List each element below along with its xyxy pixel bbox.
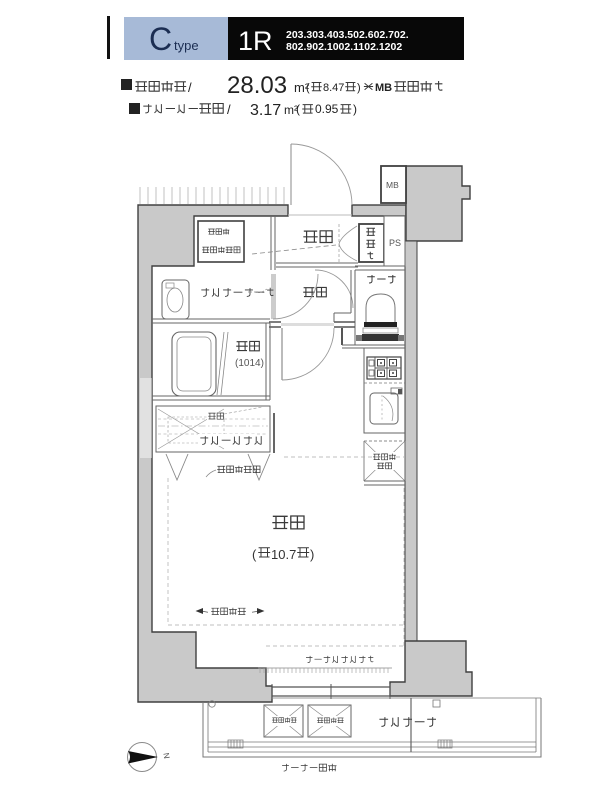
svg-text:1R: 1R bbox=[238, 26, 273, 56]
svg-text:N: N bbox=[161, 752, 171, 759]
svg-text:MB: MB bbox=[375, 82, 392, 94]
svg-text:(: ( bbox=[296, 102, 300, 116]
svg-text:(1014): (1014) bbox=[235, 358, 264, 369]
svg-text:/: / bbox=[227, 102, 231, 117]
svg-text:10.7: 10.7 bbox=[271, 547, 296, 562]
svg-text:(: ( bbox=[252, 547, 257, 562]
svg-text:): ) bbox=[357, 82, 361, 94]
svg-text:28.03: 28.03 bbox=[227, 72, 287, 99]
svg-text:(: ( bbox=[306, 82, 310, 94]
svg-text:type: type bbox=[174, 38, 199, 53]
svg-text:8.47: 8.47 bbox=[323, 82, 344, 94]
svg-text:MB: MB bbox=[386, 180, 399, 190]
svg-text:C: C bbox=[149, 21, 172, 57]
svg-text:203.303.403.502.602.702.: 203.303.403.502.602.702. bbox=[286, 29, 409, 41]
svg-text:/: / bbox=[188, 80, 192, 95]
svg-text:802.902.1002.1102.1202: 802.902.1002.1102.1202 bbox=[286, 41, 402, 53]
svg-text:0.95: 0.95 bbox=[315, 102, 339, 116]
svg-text:): ) bbox=[353, 102, 357, 116]
svg-text:3.17: 3.17 bbox=[250, 102, 281, 119]
svg-text:PS: PS bbox=[389, 238, 401, 248]
svg-text:): ) bbox=[310, 547, 314, 562]
